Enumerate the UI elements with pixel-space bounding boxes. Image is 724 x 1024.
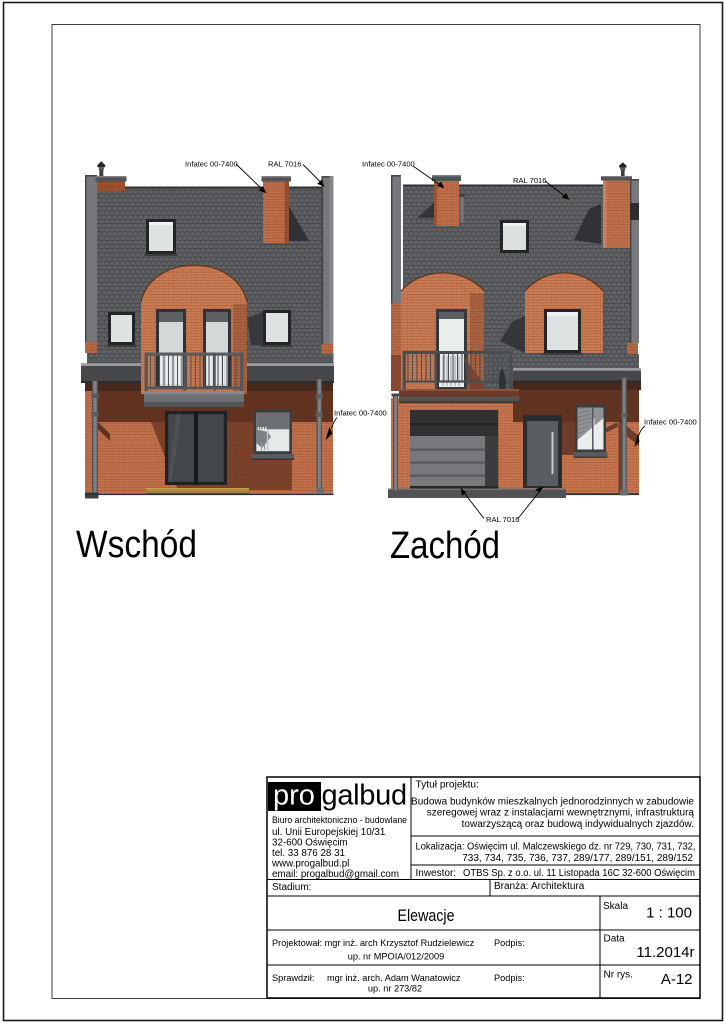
svg-text:Stadium:: Stadium:	[272, 882, 311, 893]
svg-text:Podpis:: Podpis:	[494, 938, 525, 948]
svg-text:Lokalizacja: Oświęcim ul. Malc: Lokalizacja: Oświęcim ul. Malczewskiego …	[416, 841, 696, 852]
svg-text:mgr inż. arch. Adam Wanatowicz: mgr inż. arch. Adam Wanatowicz	[327, 973, 461, 983]
svg-text:Tytuł projektu:: Tytuł projektu:	[416, 780, 479, 791]
svg-text:up. nr MPOIA/012/2009: up. nr MPOIA/012/2009	[348, 951, 445, 961]
svg-text:up. nr 273/82: up. nr 273/82	[368, 983, 422, 993]
svg-text:Data: Data	[604, 934, 626, 945]
svg-text:Infatec 00-7400: Infatec 00-7400	[334, 409, 387, 418]
svg-text:galbud: galbud	[322, 780, 407, 812]
svg-text:Skala: Skala	[603, 901, 628, 912]
svg-text:Biuro architektoniczno - budo: Biuro architektoniczno - budowlane	[272, 815, 407, 825]
svg-text:email: progalbud@gmail.com: email: progalbud@gmail.com	[272, 869, 399, 880]
svg-text:Podpis:: Podpis:	[494, 973, 525, 983]
svg-text:11.2014r: 11.2014r	[636, 944, 694, 961]
svg-text:tel. 33 876 28 31: tel. 33 876 28 31	[272, 848, 345, 859]
svg-text:RAL 7016: RAL 7016	[513, 176, 547, 185]
svg-text:Architektura: Architektura	[531, 881, 585, 892]
svg-text:OTBS Sp. z o.o. ul. 11 Listopa: OTBS Sp. z o.o. ul. 11 Listopada 16C 32-…	[463, 868, 695, 879]
svg-text:Projektował: mgr inż. arch Krz: Projektował: mgr inż. arch Krzysztof Rud…	[272, 938, 475, 948]
svg-text:pro: pro	[273, 780, 315, 812]
svg-text:Zachód: Zachód	[390, 525, 500, 567]
svg-text:Infatec 00-7400: Infatec 00-7400	[644, 418, 697, 427]
svg-text:Sprawdził:: Sprawdził:	[272, 973, 314, 983]
svg-text:ul. Unii Europejskiej 10/31: ul. Unii Europejskiej 10/31	[272, 827, 385, 838]
svg-text:Nr rys.: Nr rys.	[604, 970, 633, 981]
svg-text:Branża:: Branża:	[494, 881, 528, 892]
svg-text:towarzyszącą oraz budową indyw: towarzyszącą oraz budową indywidualnych …	[462, 819, 694, 830]
svg-text:Infatec 00-7400: Infatec 00-7400	[185, 160, 238, 169]
svg-text:Infatec 00-7400: Infatec 00-7400	[362, 160, 415, 169]
svg-text:1 : 100: 1 : 100	[646, 905, 692, 922]
svg-text:Wschód: Wschód	[76, 524, 197, 566]
svg-text:www.progalbud.pl: www.progalbud.pl	[271, 859, 349, 870]
svg-text:Elewacje: Elewacje	[398, 906, 455, 925]
svg-text:Budowa budynków mieszkalnych j: Budowa budynków mieszkalnych jednorodzin…	[411, 797, 694, 808]
svg-text:32-600 Oświęcim: 32-600 Oświęcim	[272, 838, 348, 849]
svg-text:Inwestor:: Inwestor:	[416, 868, 457, 879]
svg-text:szeregowej wraz z instalacjami: szeregowej wraz z instalacjami wewnętrzn…	[427, 808, 695, 819]
svg-text:RAL 7016: RAL 7016	[486, 515, 520, 524]
svg-text:RAL 7016: RAL 7016	[268, 160, 302, 169]
svg-text:733, 734, 735, 736, 737, 289/1: 733, 734, 735, 736, 737, 289/177, 289/15…	[462, 853, 693, 864]
svg-text:A-12: A-12	[661, 971, 693, 988]
